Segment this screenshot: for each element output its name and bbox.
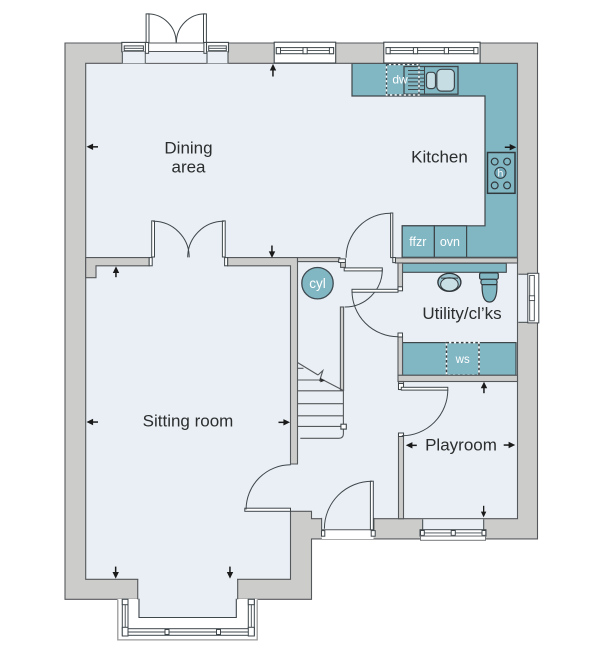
svg-text:Sitting room: Sitting room xyxy=(143,412,234,431)
svg-text:ovn: ovn xyxy=(440,235,460,249)
svg-text:dw: dw xyxy=(392,73,408,87)
svg-text:area: area xyxy=(171,158,206,177)
svg-text:ffzr: ffzr xyxy=(409,235,426,249)
svg-text:Playroom: Playroom xyxy=(425,436,497,455)
svg-text:Utility/cl’ks: Utility/cl’ks xyxy=(422,304,501,323)
svg-text:ws: ws xyxy=(455,354,470,366)
svg-text:Dining: Dining xyxy=(164,139,212,158)
svg-text:h: h xyxy=(497,168,503,180)
svg-text:Kitchen: Kitchen xyxy=(411,148,468,167)
svg-text:cyl: cyl xyxy=(309,276,326,291)
